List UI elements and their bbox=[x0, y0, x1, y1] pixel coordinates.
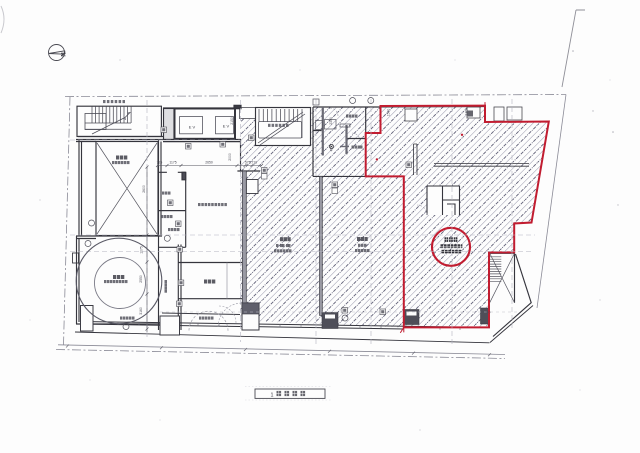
svg-text:E V: E V bbox=[189, 124, 196, 129]
svg-text:1175: 1175 bbox=[169, 161, 176, 165]
svg-text:725: 725 bbox=[157, 161, 163, 165]
svg-text:2350: 2350 bbox=[329, 117, 333, 125]
svg-text:2000: 2000 bbox=[228, 153, 232, 161]
svg-text:3160: 3160 bbox=[139, 307, 143, 315]
svg-text:1800: 1800 bbox=[465, 108, 469, 116]
svg-text:2650: 2650 bbox=[205, 161, 213, 165]
svg-text:1-0: 1-0 bbox=[486, 311, 491, 315]
svg-text:455: 455 bbox=[330, 146, 334, 152]
svg-text:1500: 1500 bbox=[387, 109, 391, 117]
svg-text:1: 1 bbox=[271, 392, 274, 398]
svg-text:2550: 2550 bbox=[139, 275, 143, 283]
svg-text:575,710: 575,710 bbox=[245, 161, 257, 165]
svg-text:N: N bbox=[62, 52, 68, 56]
svg-text:E V: E V bbox=[223, 124, 230, 129]
svg-text:1075: 1075 bbox=[139, 246, 143, 254]
svg-text:2600: 2600 bbox=[142, 185, 146, 193]
svg-text:2150: 2150 bbox=[230, 117, 234, 125]
